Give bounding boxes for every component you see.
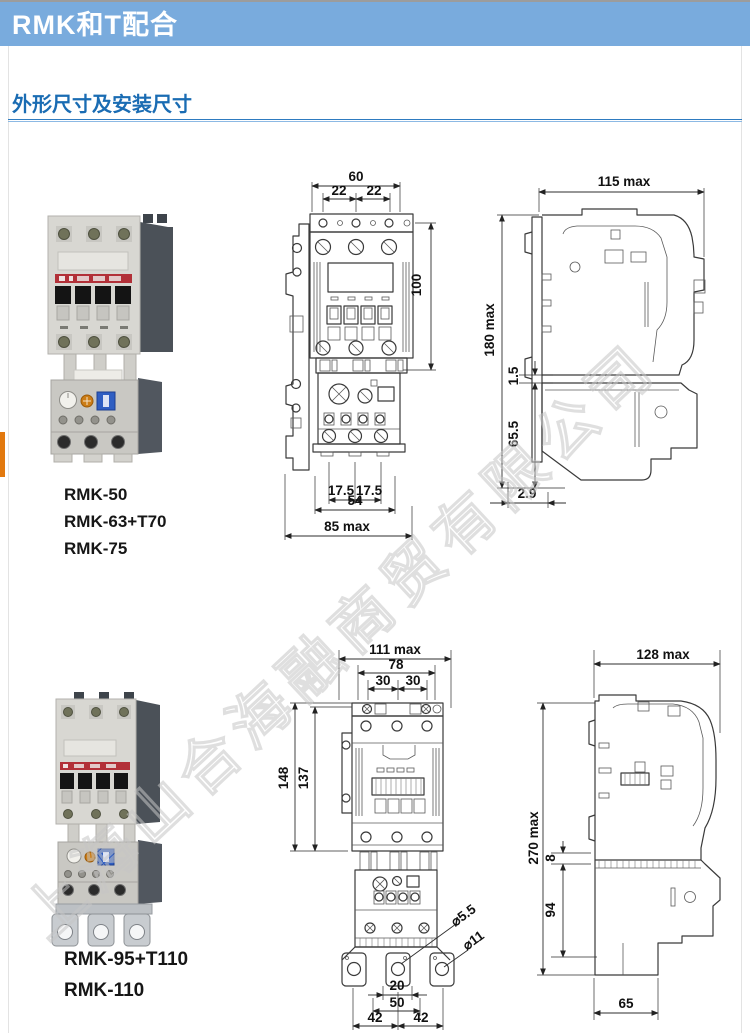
dim-relay-height: 65.5 (506, 420, 521, 447)
dim-hole-small: ⌀5.5 (448, 901, 479, 929)
model-label: RMK-75 (64, 535, 167, 562)
dim-height-inner: 137 (296, 767, 311, 790)
dim-slot-span: 50 (389, 995, 404, 1010)
dim-pitch-right: 30 (405, 673, 420, 688)
contactor-side-outline (525, 209, 705, 462)
model-label: RMK-63+T70 (64, 508, 167, 535)
overload-relay-photo (51, 354, 162, 462)
dim-height: 180 max (482, 303, 497, 357)
dim-slot-width: 20 (389, 978, 404, 993)
model-list-1: RMK-50 RMK-63+T70 RMK-75 (64, 481, 167, 562)
front-view-drawing-2: 111 max 78 30 30 148 137 (280, 638, 502, 1033)
orange-adjust-screw (85, 852, 95, 862)
relay-front-outline (313, 358, 407, 456)
contactor-front-outline (342, 703, 443, 851)
model-label: RMK-110 (64, 975, 188, 1006)
contactor-photo (48, 214, 173, 354)
dim-pitch-left: 22 (331, 183, 346, 198)
dim-depth: 115 max (598, 174, 651, 189)
mounting-plate (56, 904, 152, 914)
page-title: RMK和T配合 (0, 2, 750, 41)
dim-mount-width: 54 (347, 493, 363, 508)
section-title: 外形尺寸及安装尺寸 (12, 88, 192, 117)
aux-block-outline (286, 224, 309, 470)
orange-edge-marker (0, 432, 5, 477)
contactor-side-outline (589, 695, 716, 860)
dim-gap: 8 (543, 854, 558, 862)
dial-selector (67, 849, 81, 863)
model-list-2: RMK-95+T110 RMK-110 (64, 944, 188, 1006)
page-header: RMK和T配合 (0, 2, 750, 46)
dim-mount-width: 78 (388, 657, 404, 672)
relay-side-outline (595, 860, 720, 975)
contactor-front-outline (310, 214, 413, 358)
product-photo-rmk95 (52, 692, 187, 954)
dim-height: 270 max (526, 811, 541, 865)
relay-side-outline (542, 383, 697, 480)
catalog-page: RMK和T配合 外形尺寸及安装尺寸 上海山合海融商贸有限公司 (0, 0, 750, 1033)
dim-total-width: 111 max (369, 642, 421, 657)
left-border (8, 46, 9, 1033)
dim-lug-left: 42 (367, 1010, 382, 1025)
dim-total-width: 85 max (324, 519, 370, 534)
dim-gap: 1.5 (506, 366, 521, 385)
dim-height: 100 (409, 274, 424, 297)
dim-base-depth: 65 (618, 996, 634, 1011)
dim-lug-right: 42 (413, 1010, 428, 1025)
front-view-drawing-1: 60 22 22 (283, 166, 463, 544)
model-label: RMK-50 (64, 481, 167, 508)
dim-depth: 128 max (636, 647, 690, 662)
dim-top-width: 60 (348, 169, 363, 184)
side-view-drawing-1: 115 max 180 max 1.5 65.5 2.9 (485, 162, 747, 508)
dim-offset: 2.9 (518, 486, 537, 501)
model-label: RMK-95+T110 (64, 944, 188, 975)
overload-relay-photo (52, 824, 162, 946)
section-underline (8, 119, 742, 120)
dim-pitch-right: 22 (366, 183, 381, 198)
side-view-drawing-2: 128 max 270 max 8 94 (533, 638, 750, 1033)
relay-front-outline (355, 852, 437, 947)
dim-relay-height: 94 (543, 902, 558, 918)
dim-pitch-left: 30 (375, 673, 390, 688)
dim-hole-large: ⌀11 (460, 927, 487, 953)
dim-height-outer: 148 (276, 766, 291, 789)
section-underline-light (8, 121, 742, 122)
product-photo-rmk50 (46, 212, 176, 462)
contactor-photo (56, 692, 160, 824)
